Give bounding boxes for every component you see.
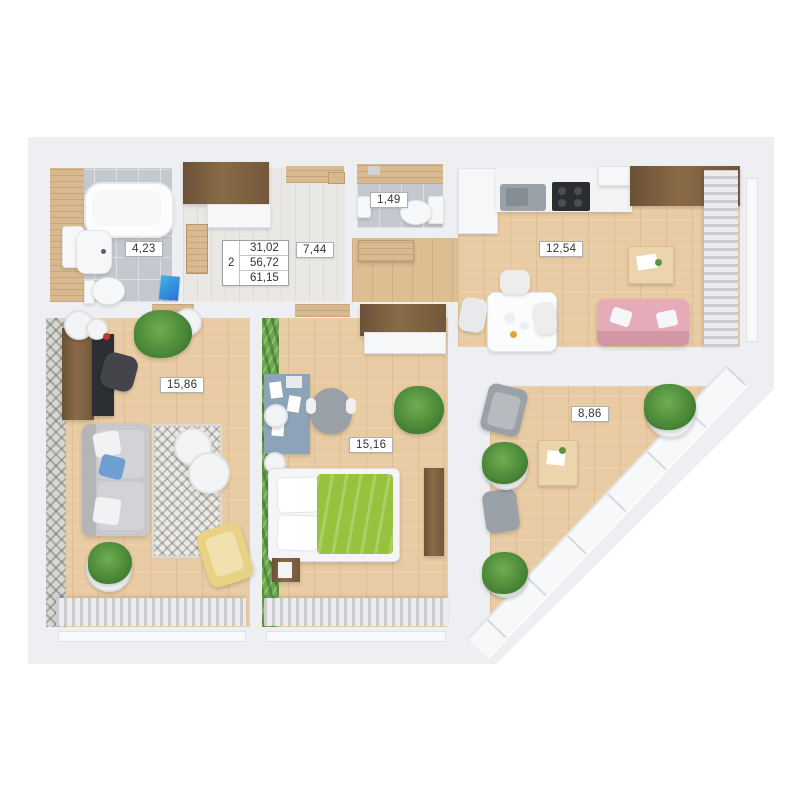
plate xyxy=(504,313,515,324)
blue-artwork xyxy=(159,275,180,301)
window-living xyxy=(58,631,246,642)
round-side-table xyxy=(188,452,230,494)
legend-total-area: 61,15 xyxy=(240,270,288,285)
bedroom-curtains xyxy=(264,598,448,626)
gray-sofa xyxy=(82,424,150,536)
legend-floor-area: 56,72 xyxy=(240,255,288,270)
area-label-wc: 1,49 xyxy=(370,192,408,208)
bedroom-lamp xyxy=(264,404,288,428)
nightstand xyxy=(272,558,300,582)
area-label-balcony: 8,86 xyxy=(571,406,609,422)
window-bedroom xyxy=(266,631,446,642)
book xyxy=(278,562,292,578)
window-kitchen xyxy=(746,178,758,342)
faucet xyxy=(101,249,106,254)
balcony-chair xyxy=(481,488,521,534)
burner xyxy=(574,187,582,195)
washbasin xyxy=(76,230,112,274)
toilet xyxy=(92,277,125,305)
living-curtains xyxy=(56,598,246,626)
dining-chair xyxy=(532,301,558,336)
bedroom-wardrobe-front xyxy=(364,332,446,354)
bed xyxy=(268,468,400,562)
small-plant xyxy=(655,259,662,266)
bathtub-basin xyxy=(92,190,162,226)
legend-table: 2 31,02 56,72 61,15 xyxy=(222,240,289,286)
coffee-table xyxy=(628,246,674,284)
laptop xyxy=(286,376,302,388)
burner xyxy=(574,199,582,207)
fruit-bowl xyxy=(510,331,517,338)
blanket xyxy=(317,474,393,554)
pink-sofa xyxy=(597,299,689,346)
pillow xyxy=(276,514,319,551)
chair-seat xyxy=(486,391,521,431)
sofa-backrest xyxy=(597,331,689,346)
red-accessory xyxy=(103,333,110,340)
dining-chair xyxy=(500,270,530,294)
area-label-hallway: 7,44 xyxy=(296,242,334,258)
entry-bench xyxy=(358,240,414,262)
sofa-pillow xyxy=(609,306,633,327)
legend-living-area: 31,02 xyxy=(240,241,288,255)
sofa-pillow xyxy=(92,496,121,525)
living-sideboard xyxy=(62,328,94,420)
floor-plan: 4,23 1,49 7,44 12,54 15,86 15,16 8,86 2 … xyxy=(0,0,800,800)
area-label-kitchen-living: 12,54 xyxy=(539,241,583,257)
key-shelf xyxy=(328,172,345,184)
sink-basin xyxy=(506,188,528,206)
area-label-living-room: 15,86 xyxy=(160,377,204,393)
dresser xyxy=(424,468,444,556)
area-label-bedroom: 15,16 xyxy=(349,437,393,453)
kitchen-curtains xyxy=(704,170,738,347)
sofa-pillow xyxy=(656,309,679,329)
burner xyxy=(558,199,566,207)
wc-sink xyxy=(357,196,371,218)
hall-wardrobe-front xyxy=(207,204,271,228)
desk-chair xyxy=(310,388,352,434)
burner xyxy=(558,187,566,195)
bedroom-door-threshold xyxy=(295,304,350,317)
kitchen-hood xyxy=(598,166,632,186)
armrest xyxy=(306,398,316,414)
plate xyxy=(520,321,529,330)
wc-towel xyxy=(368,166,380,175)
balcony-table xyxy=(538,440,578,486)
legend-room-count: 2 xyxy=(223,241,240,285)
kitchen-sink xyxy=(500,184,546,211)
cooktop xyxy=(552,182,590,211)
area-label-bathroom: 4,23 xyxy=(125,241,163,257)
hall-wardrobe xyxy=(183,162,269,204)
fridge xyxy=(458,168,498,234)
bathroom-door xyxy=(186,224,208,274)
paper xyxy=(287,395,302,413)
pillow xyxy=(276,476,319,513)
small-plant xyxy=(559,447,566,454)
armrest xyxy=(346,398,356,414)
armchair-seat xyxy=(204,530,245,577)
paper xyxy=(269,381,283,399)
